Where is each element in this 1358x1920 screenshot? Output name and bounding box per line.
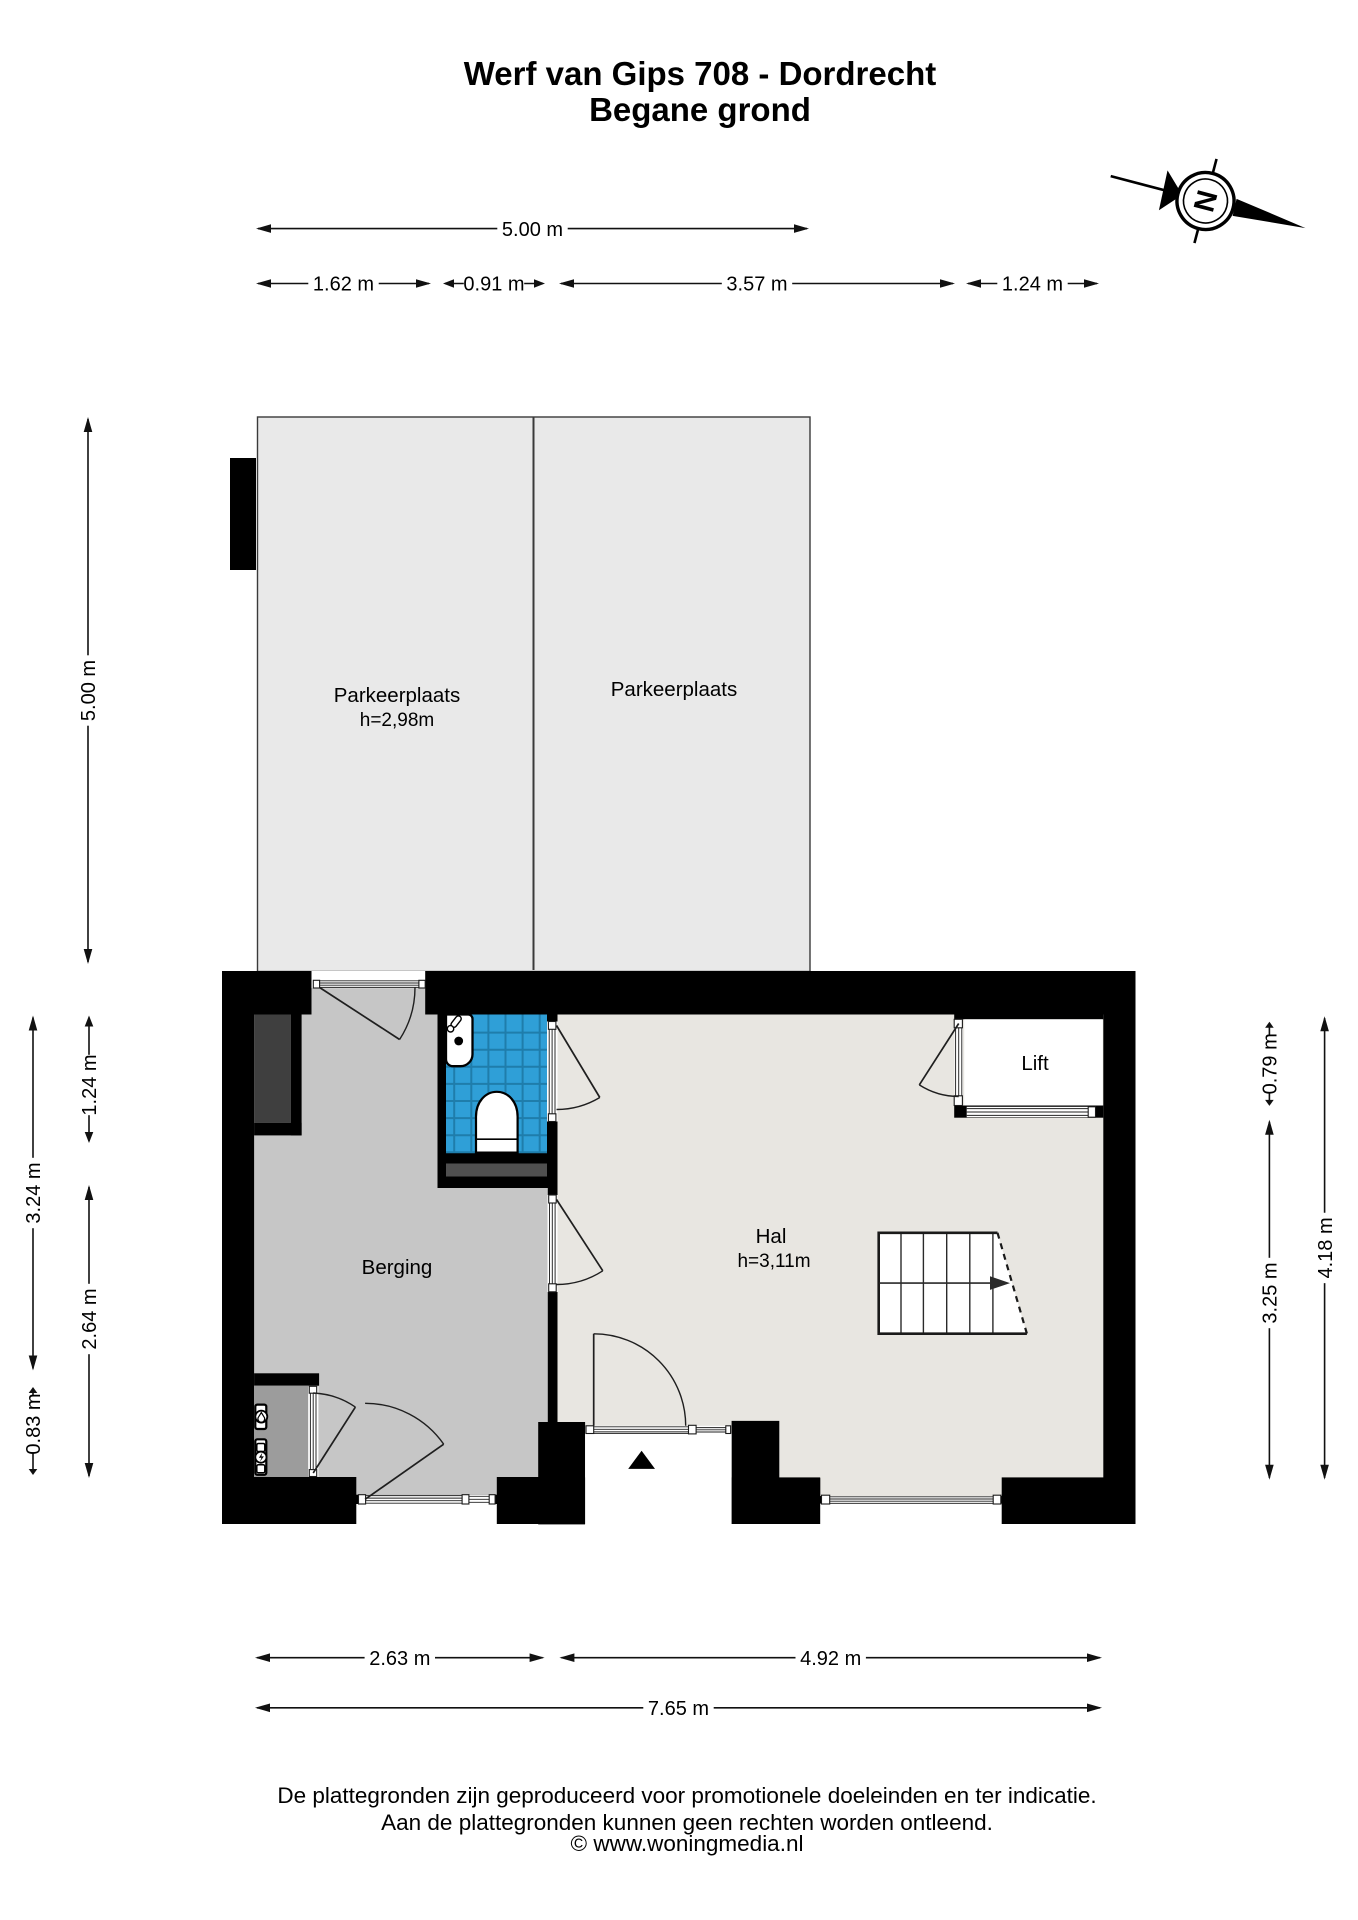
svg-text:0.91 m: 0.91 m (463, 274, 524, 296)
svg-text:Werf van Gips 708 - Dordrecht: Werf van Gips 708 - Dordrecht (464, 55, 937, 92)
svg-text:1.24 m: 1.24 m (1002, 274, 1063, 296)
svg-text:Hal: Hal (756, 1225, 787, 1248)
svg-text:2.63 m: 2.63 m (369, 1648, 430, 1670)
svg-text:h=2,98m: h=2,98m (360, 710, 434, 731)
svg-text:3.25 m: 3.25 m (1260, 1262, 1282, 1323)
svg-text:De plattegronden zijn geproduc: De plattegronden zijn geproduceerd voor … (277, 1783, 1096, 1808)
svg-text:5.00 m: 5.00 m (78, 660, 100, 721)
svg-text:3.57 m: 3.57 m (726, 274, 787, 296)
svg-text:Lift: Lift (1021, 1052, 1049, 1075)
svg-text:4.18 m: 4.18 m (1315, 1217, 1337, 1278)
svg-text:Begane grond: Begane grond (589, 91, 811, 128)
svg-text:0.83 m: 0.83 m (23, 1393, 45, 1454)
svg-text:© www.woningmedia.nl: © www.woningmedia.nl (571, 1831, 804, 1856)
svg-text:2.64 m: 2.64 m (79, 1288, 101, 1349)
svg-text:0.79 m: 0.79 m (1260, 1033, 1282, 1094)
svg-text:3.24 m: 3.24 m (23, 1162, 45, 1223)
svg-text:7.65 m: 7.65 m (648, 1698, 709, 1720)
svg-text:1.24 m: 1.24 m (79, 1054, 101, 1115)
svg-text:h=3,11m: h=3,11m (737, 1251, 810, 1272)
svg-text:Parkeerplaats: Parkeerplaats (611, 678, 737, 701)
svg-text:1.62 m: 1.62 m (313, 274, 374, 296)
svg-text:5.00 m: 5.00 m (502, 219, 563, 241)
svg-text:4.92 m: 4.92 m (800, 1648, 861, 1670)
svg-text:Berging: Berging (362, 1256, 433, 1279)
svg-text:Parkeerplaats: Parkeerplaats (334, 684, 460, 707)
